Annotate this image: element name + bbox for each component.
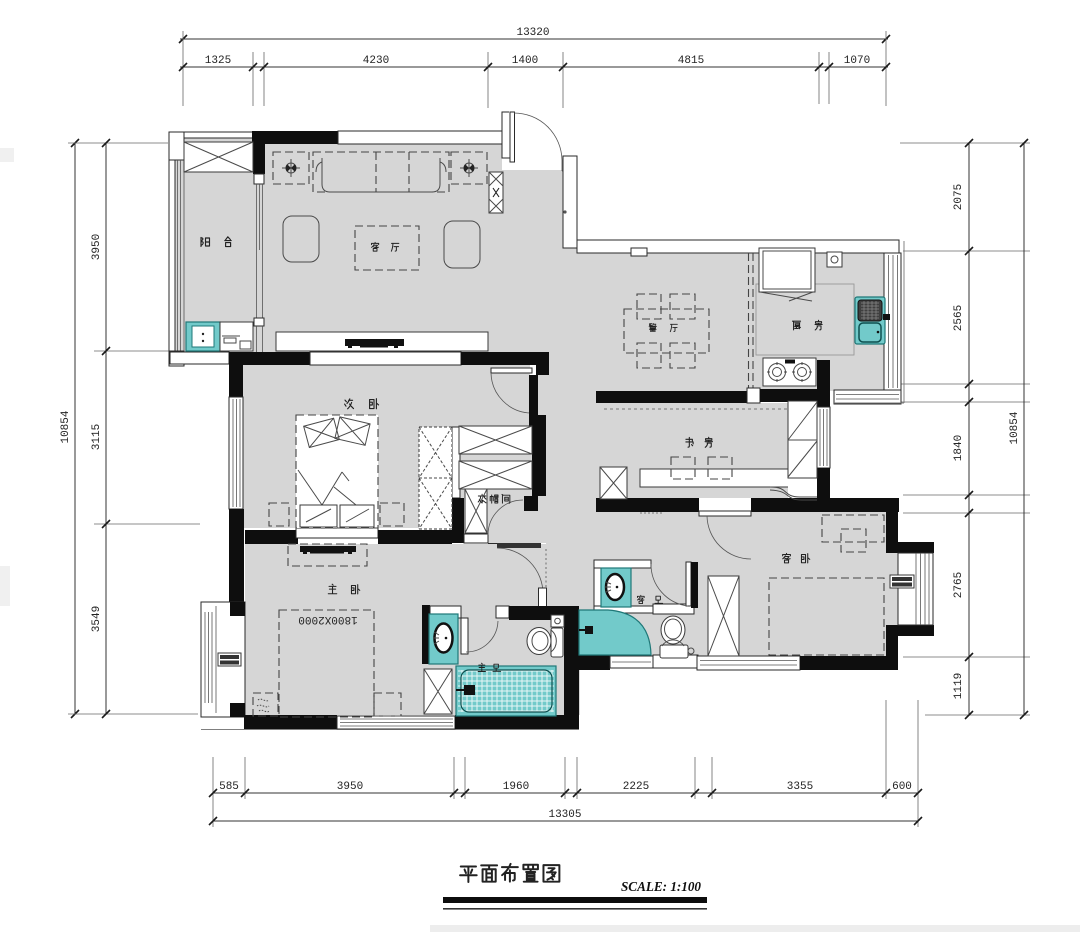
svg-text:SCALE: 1:100: SCALE: 1:100 xyxy=(621,880,701,895)
svg-text:1119: 1119 xyxy=(953,673,965,699)
svg-text:1070: 1070 xyxy=(844,55,870,67)
svg-text:3355: 3355 xyxy=(787,781,813,793)
svg-text:2765: 2765 xyxy=(953,572,965,598)
svg-text:1325: 1325 xyxy=(205,55,231,67)
svg-text:585: 585 xyxy=(219,781,239,793)
svg-text:10854: 10854 xyxy=(60,410,72,443)
svg-text:600: 600 xyxy=(892,781,912,793)
svg-text:2075: 2075 xyxy=(953,184,965,210)
svg-text:13320: 13320 xyxy=(516,27,549,39)
svg-text:1840: 1840 xyxy=(953,435,965,461)
svg-text:1400: 1400 xyxy=(512,55,538,67)
svg-text:3549: 3549 xyxy=(91,606,103,632)
svg-text:13305: 13305 xyxy=(548,809,581,821)
svg-text:3950: 3950 xyxy=(91,234,103,260)
svg-text:4230: 4230 xyxy=(363,55,389,67)
svg-text:2225: 2225 xyxy=(623,781,649,793)
svg-text:3950: 3950 xyxy=(337,781,363,793)
svg-text:2565: 2565 xyxy=(953,305,965,331)
svg-text:10854: 10854 xyxy=(1009,411,1021,444)
svg-text:1800X2000: 1800X2000 xyxy=(298,613,357,625)
svg-text:4815: 4815 xyxy=(678,55,704,67)
svg-text:3115: 3115 xyxy=(91,424,103,450)
svg-text:1960: 1960 xyxy=(503,781,529,793)
